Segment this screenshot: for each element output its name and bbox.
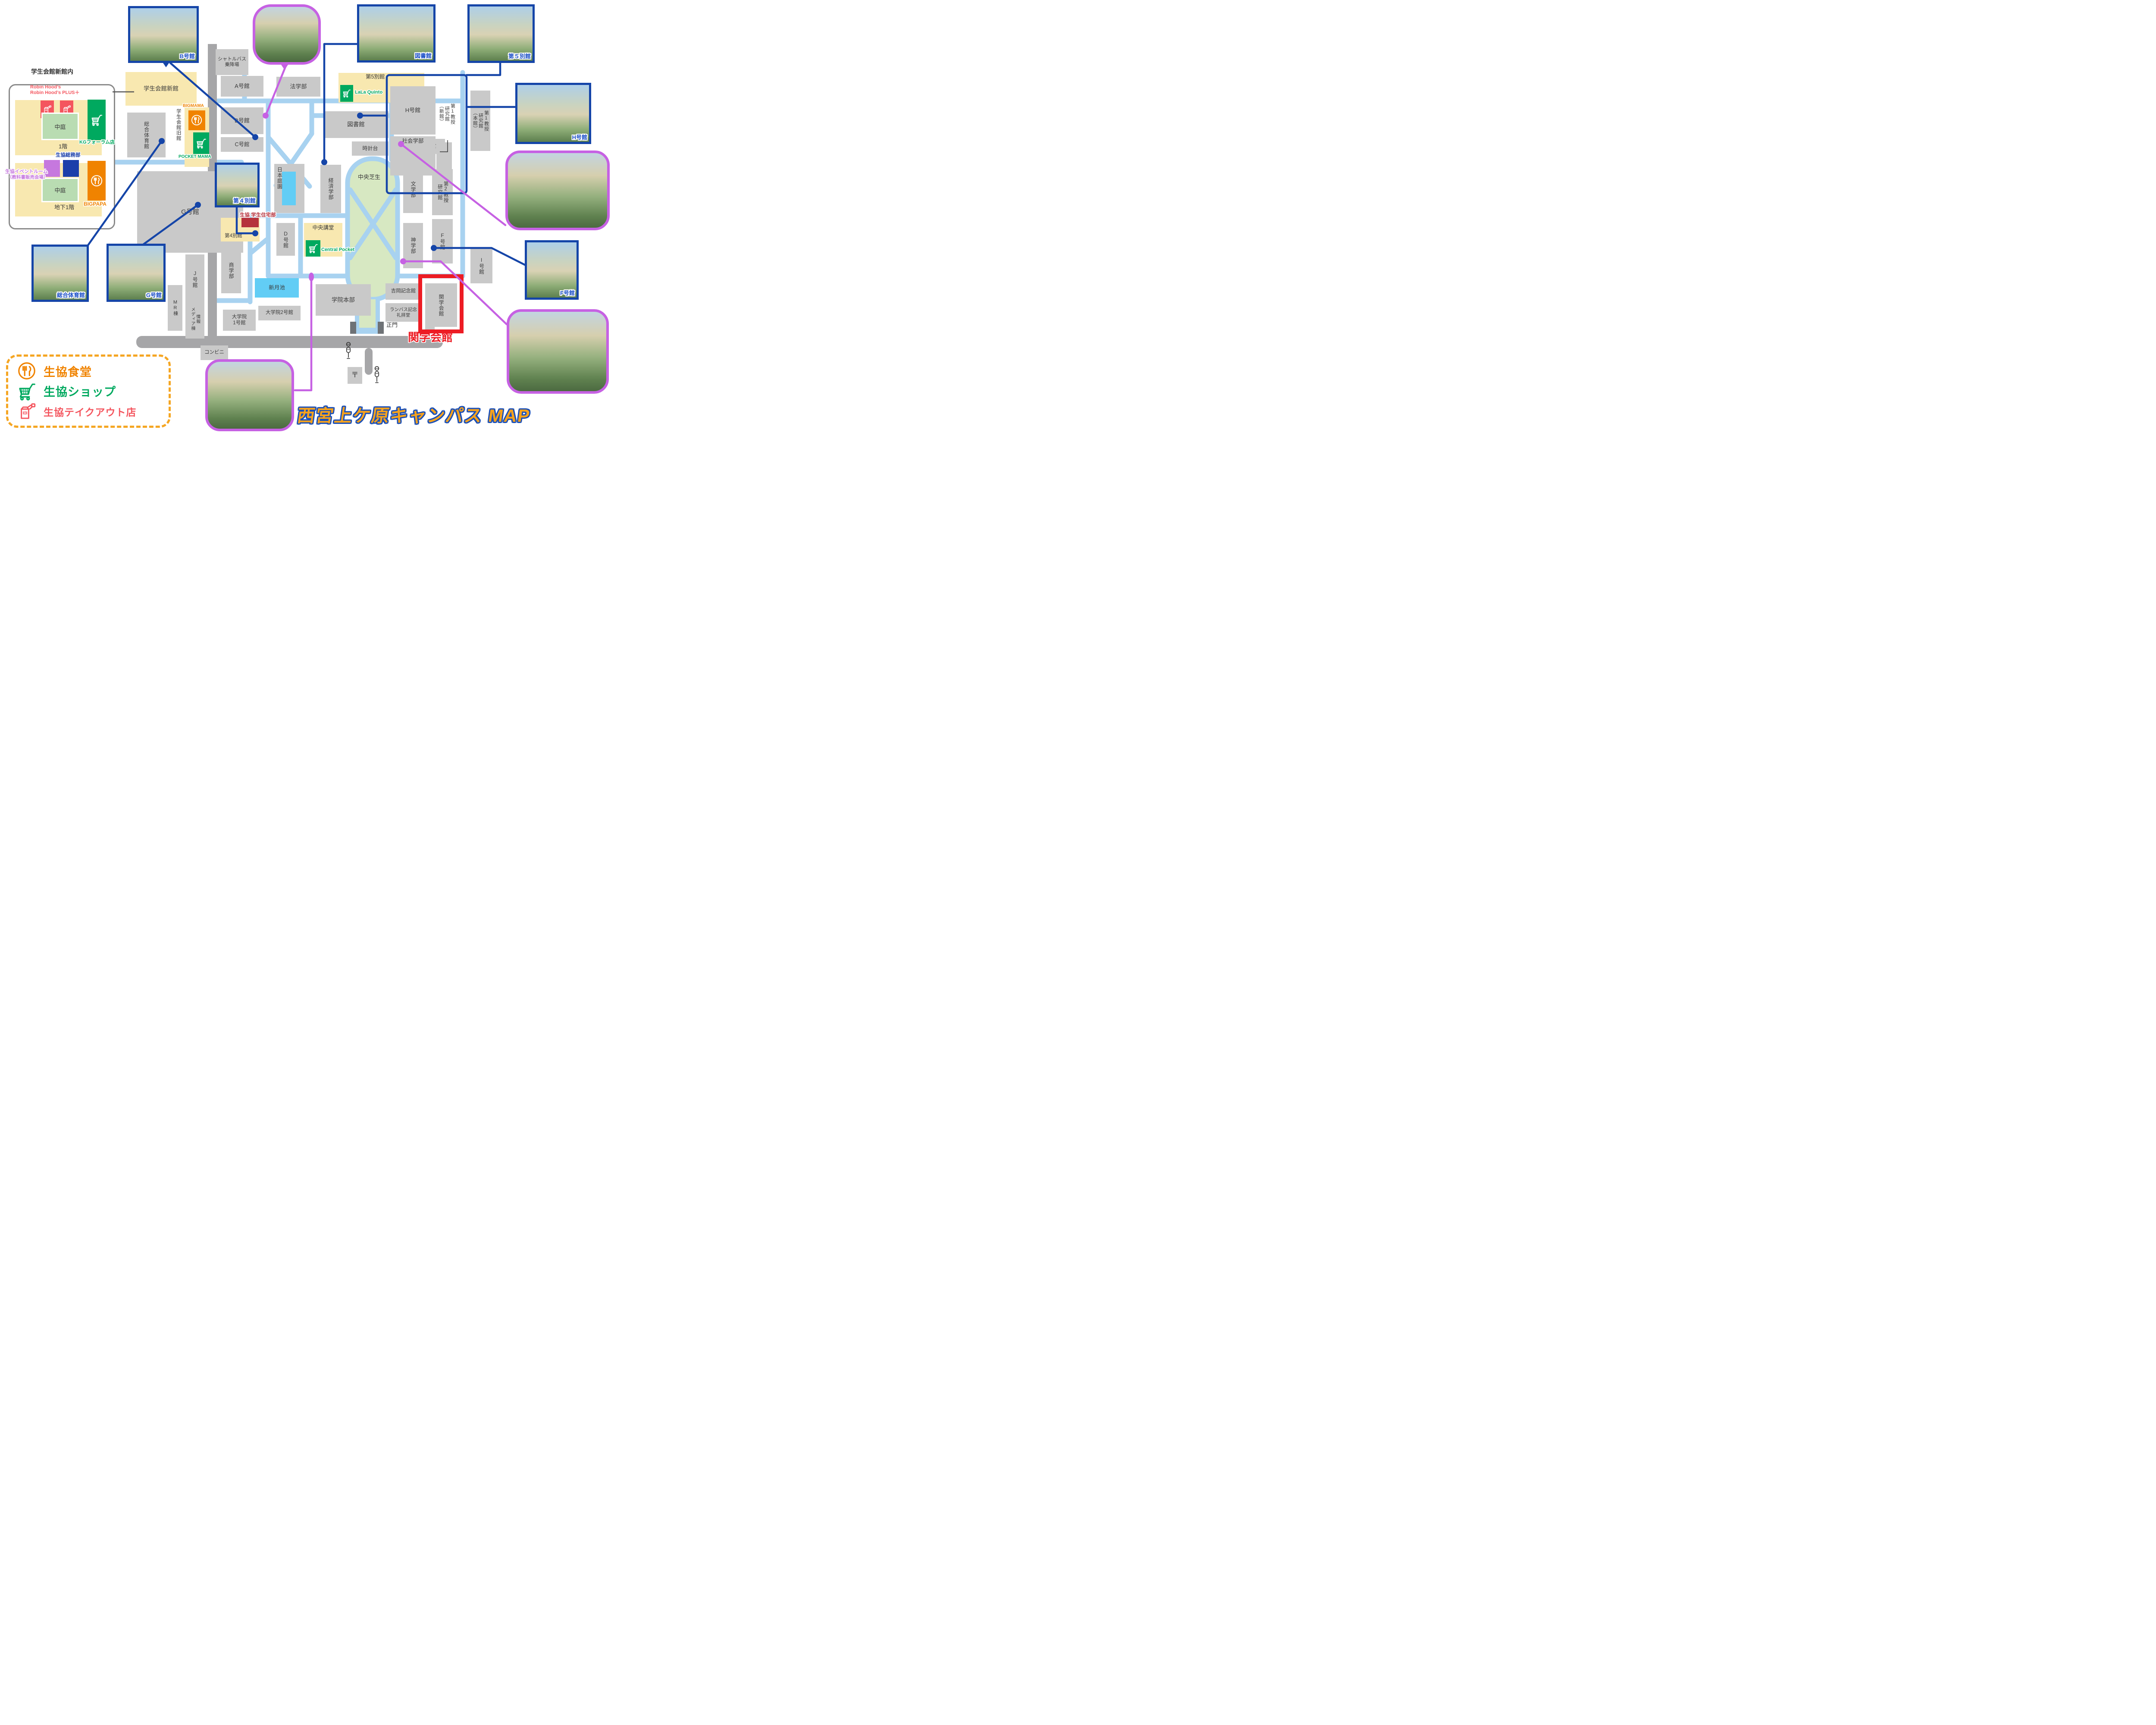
cart-icon [17,381,37,401]
photo-gymnasium: 総合体育館 [31,245,89,302]
photo-g-building: G号館 [107,244,166,302]
coop-legend-item: 生協ショップ [17,381,169,401]
photo-f-building: F号館 [525,240,579,300]
takeout-icon [17,401,37,421]
photo-gymnasium-caption: 総合体育館 [57,291,85,299]
photo-notch [162,62,170,67]
coop-legend-label: 生協テイクアウト店 [44,404,137,419]
campus-map: シャトルバス 乗降場学生会館新館A号館法学部B号館C号館総合体育館G号館第4別館… [0,0,610,431]
coop-legend-label: 生協食堂 [44,363,92,379]
dining-icon [17,361,37,381]
coop-legend-item: 生協テイクアウト店 [17,401,169,421]
photo-library: 図書館 [357,4,436,63]
coop-legend-label: 生協ショップ [44,383,116,399]
photo-b-building: B号館 [128,6,199,63]
photo-grove [507,309,609,394]
dining-icon [17,361,37,381]
takeout-icon [17,401,37,421]
photo-dai5-bekkan: 第５別館 [467,4,535,63]
photo-archway [253,4,321,65]
page-title: 西宮上ケ原キャンパス MAP [296,401,533,427]
photo-g-building-caption: G号館 [146,291,162,299]
photo-b-building-caption: B号館 [180,52,195,60]
photo-courtyard-garden [205,359,294,431]
photo-dai4-bekkan: 第４別館 [215,163,260,207]
cart-icon [17,381,37,401]
photo-notch [280,63,289,70]
photo-plaza [505,151,610,230]
photo-dai4-bekkan-caption: 第４別館 [233,196,256,204]
photo-f-building-caption: F号館 [560,289,575,297]
photo-h-building: H号館 [515,83,591,144]
photo-h-building-caption: H号館 [572,133,587,141]
coop-legend-item: 生協食堂 [17,361,169,381]
photo-library-caption: 図書館 [415,51,432,60]
photo-dai5-bekkan-caption: 第５別館 [508,52,531,60]
coop-legend-box: 生協食堂生協ショップ生協テイクアウト店 [6,354,171,428]
